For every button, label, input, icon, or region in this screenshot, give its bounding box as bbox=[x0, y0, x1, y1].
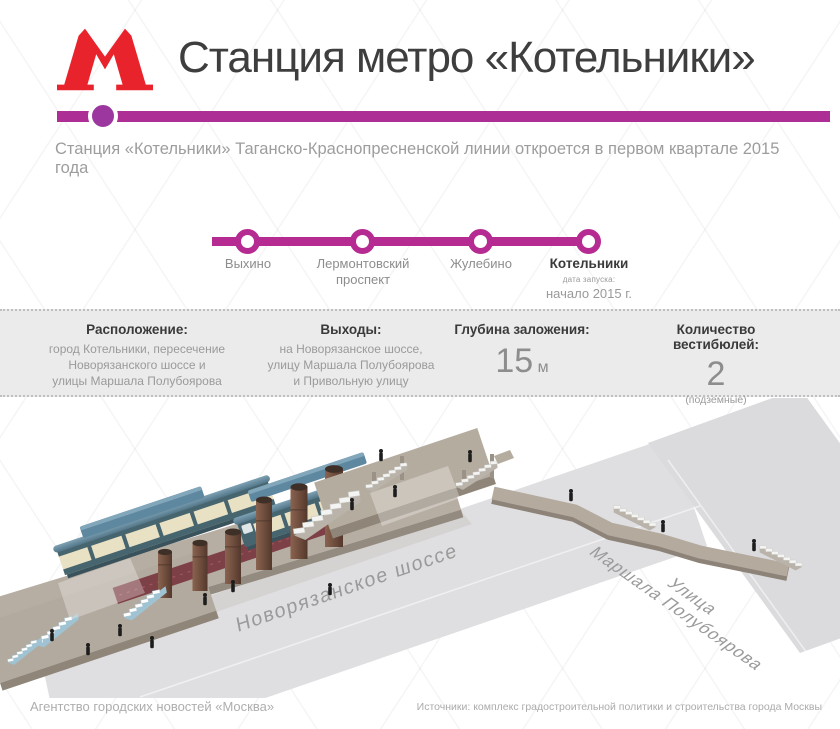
footer-sources: Источники: комплекс градостроительной по… bbox=[417, 701, 822, 713]
page-subtitle: Станция «Котельники» Таганско-Краснопрес… bbox=[55, 140, 815, 178]
page-title: Станция метро «Котельники» bbox=[178, 33, 838, 83]
header-accent-bar bbox=[57, 111, 830, 122]
station-marker-kotelniki bbox=[576, 229, 601, 254]
launch-date-value: начало 2015 г. bbox=[524, 286, 654, 302]
station-marker-vykhino bbox=[235, 229, 260, 254]
station-label-zhulebino: Жулебино bbox=[450, 256, 512, 272]
station-marker-zhulebino bbox=[468, 229, 493, 254]
launch-date-label: дата запуска: bbox=[524, 275, 654, 285]
info-col-vestibules: Количество вестибюлей: 2 (подземные) bbox=[654, 322, 778, 406]
infographic: Станция метро «Котельники» Станция «Коте… bbox=[0, 0, 840, 729]
depth-value: 15 м bbox=[454, 343, 589, 380]
info-col-exits: Выходы: на Новорязанское шоссе, улицу Ма… bbox=[268, 322, 435, 390]
station-marker-dot bbox=[88, 101, 118, 131]
station-illustration: Новорязанское шоссе Улица Маршала Полубо… bbox=[0, 398, 840, 698]
header: Станция метро «Котельники» Станция «Коте… bbox=[0, 0, 840, 180]
info-col-depth: Глубина заложения: 15 м bbox=[454, 322, 589, 380]
info-col-location: Расположение: город Котельники, пересече… bbox=[49, 322, 225, 390]
station-label-vykhino: Выхино bbox=[225, 256, 271, 272]
station-label-lermontovsky: Лермонтовский проспект bbox=[303, 256, 423, 289]
info-strip: Расположение: город Котельники, пересече… bbox=[0, 309, 840, 397]
station-label-kotelniki: Котельники дата запуска: начало 2015 г. bbox=[524, 256, 654, 302]
moscow-metro-logo-icon bbox=[57, 26, 153, 92]
footer-credit: Агентство городских новостей «Москва» bbox=[30, 699, 274, 714]
station-marker-lermontovsky bbox=[350, 229, 375, 254]
metro-line-bar bbox=[212, 237, 596, 246]
metro-line-diagram: Таганско-Краснопресненская линия Выхино … bbox=[0, 185, 840, 305]
